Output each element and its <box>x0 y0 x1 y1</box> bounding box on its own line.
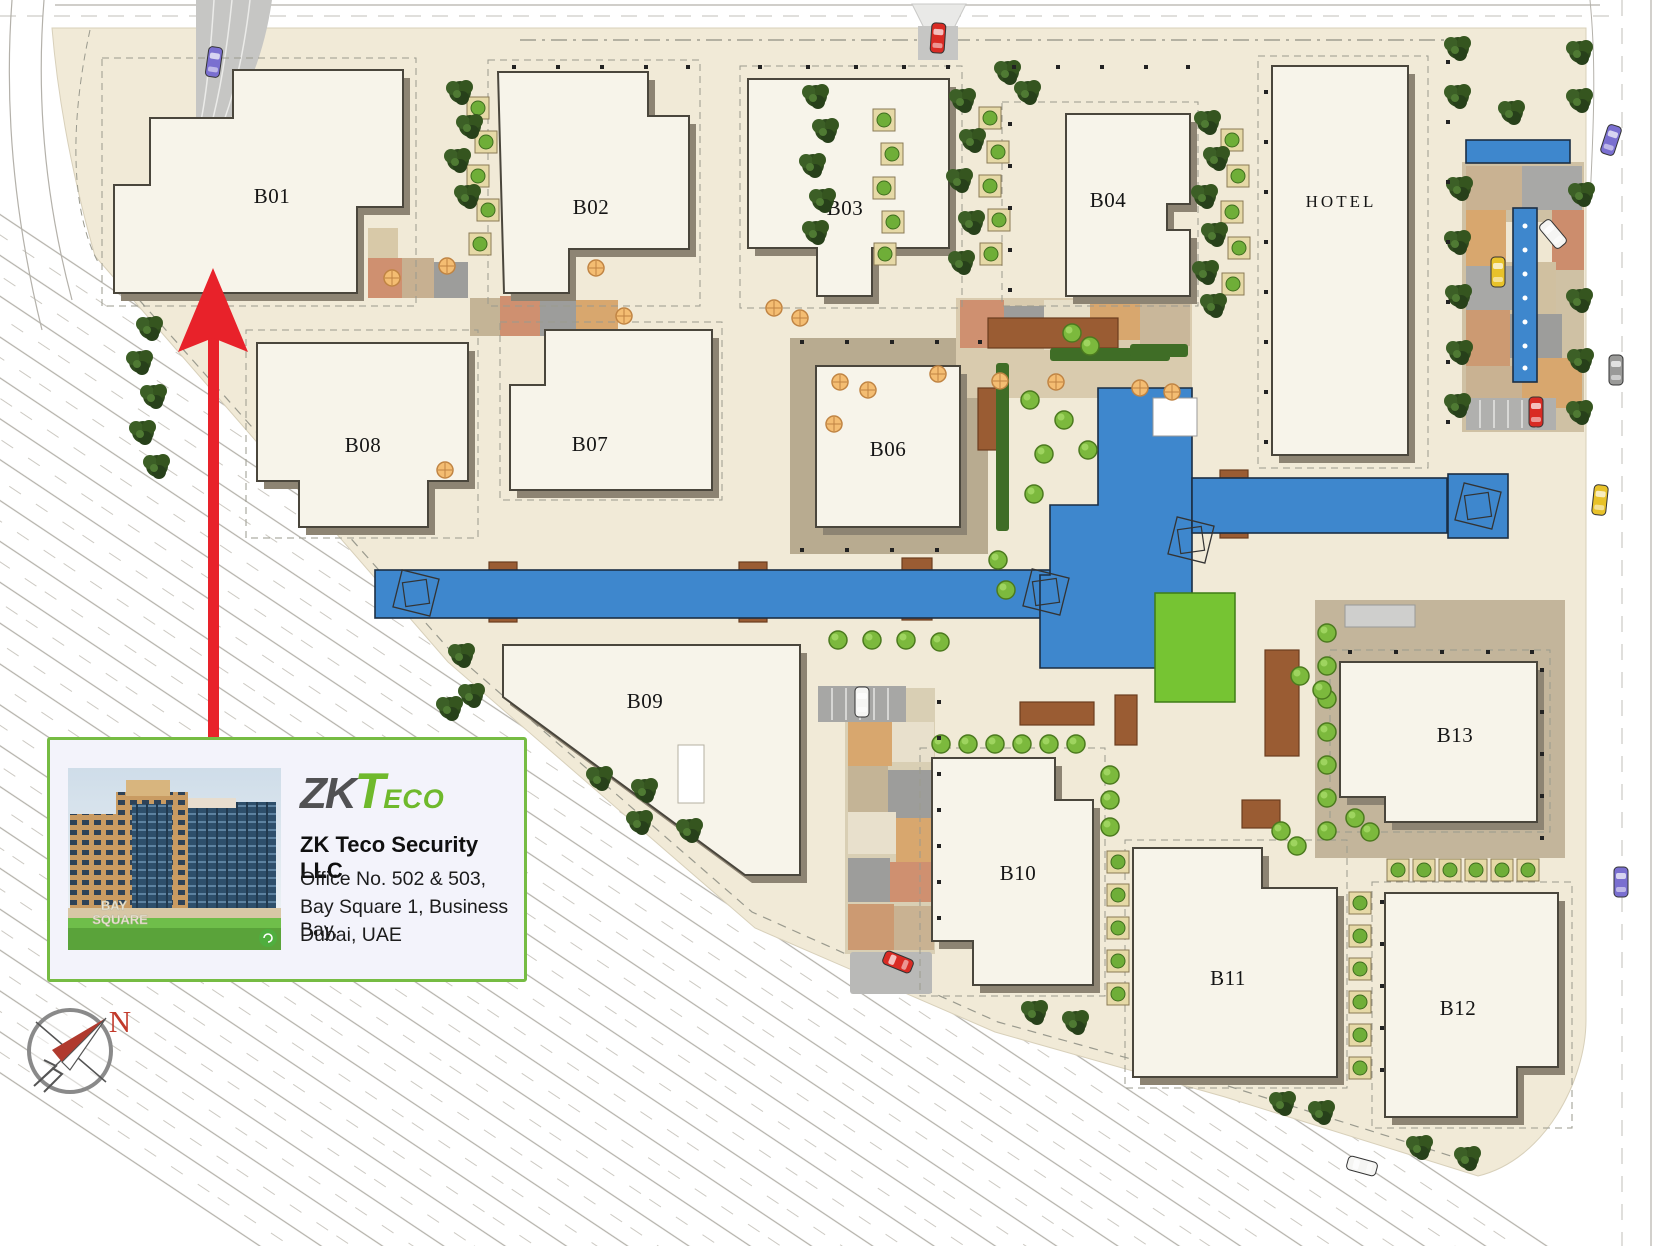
main-canal <box>375 570 1072 618</box>
address-line-3: Dubai, UAE <box>300 924 402 947</box>
building-b04: B04 <box>1066 114 1197 304</box>
building-b06: B06 <box>816 366 967 535</box>
building-label-b12: B12 <box>1440 996 1477 1020</box>
building-label-b10: B10 <box>1000 861 1037 885</box>
plaza-north-pool <box>1466 140 1570 163</box>
building-b13: B13 <box>1340 662 1544 830</box>
building-label-hotel: HOTEL <box>1306 192 1377 211</box>
logo-eco: ECO <box>383 784 445 814</box>
right-road <box>1590 0 1651 1246</box>
building-label-b09: B09 <box>627 689 664 713</box>
photo-sign-line1: BAY <box>101 898 128 913</box>
zkteco-logo: ZKTECO <box>300 766 445 816</box>
building-label-b13: B13 <box>1437 723 1474 747</box>
compass-north-label: N <box>109 1004 131 1039</box>
pool-platform <box>1153 398 1197 436</box>
building-photo-art: BAY SQUARE <box>68 768 281 950</box>
east-canal-basin <box>1448 474 1508 538</box>
logo-zk: ZK <box>300 769 355 818</box>
stairs-north-b13 <box>1345 605 1415 627</box>
photo-sign-line2: SQUARE <box>92 912 148 927</box>
info-card: BAY SQUARE ZKTECO ZK Teco Security LLC O… <box>47 737 527 982</box>
building-label-b01: B01 <box>254 184 291 208</box>
lawn <box>1155 593 1235 702</box>
building-photo: BAY SQUARE <box>68 768 281 950</box>
map-canvas: B01 B02 B03 B04 HOTEL B08 <box>0 0 1661 1246</box>
building-label-b04: B04 <box>1090 188 1127 212</box>
building-label-b02: B02 <box>573 195 610 219</box>
site-map-page: B01 B02 B03 B04 HOTEL B08 <box>0 0 1661 1246</box>
building-label-b11: B11 <box>1210 966 1246 990</box>
address-line-1: Office No. 502 & 503, <box>300 868 486 891</box>
building-hotel: HOTEL <box>1272 66 1415 463</box>
building-label-b08: B08 <box>345 433 382 457</box>
east-canal <box>1192 478 1447 533</box>
building-label-b06: B06 <box>870 437 907 461</box>
plaza-fountain-strip <box>1513 208 1537 382</box>
logo-t: T <box>355 763 384 819</box>
building-label-b07: B07 <box>572 432 609 456</box>
